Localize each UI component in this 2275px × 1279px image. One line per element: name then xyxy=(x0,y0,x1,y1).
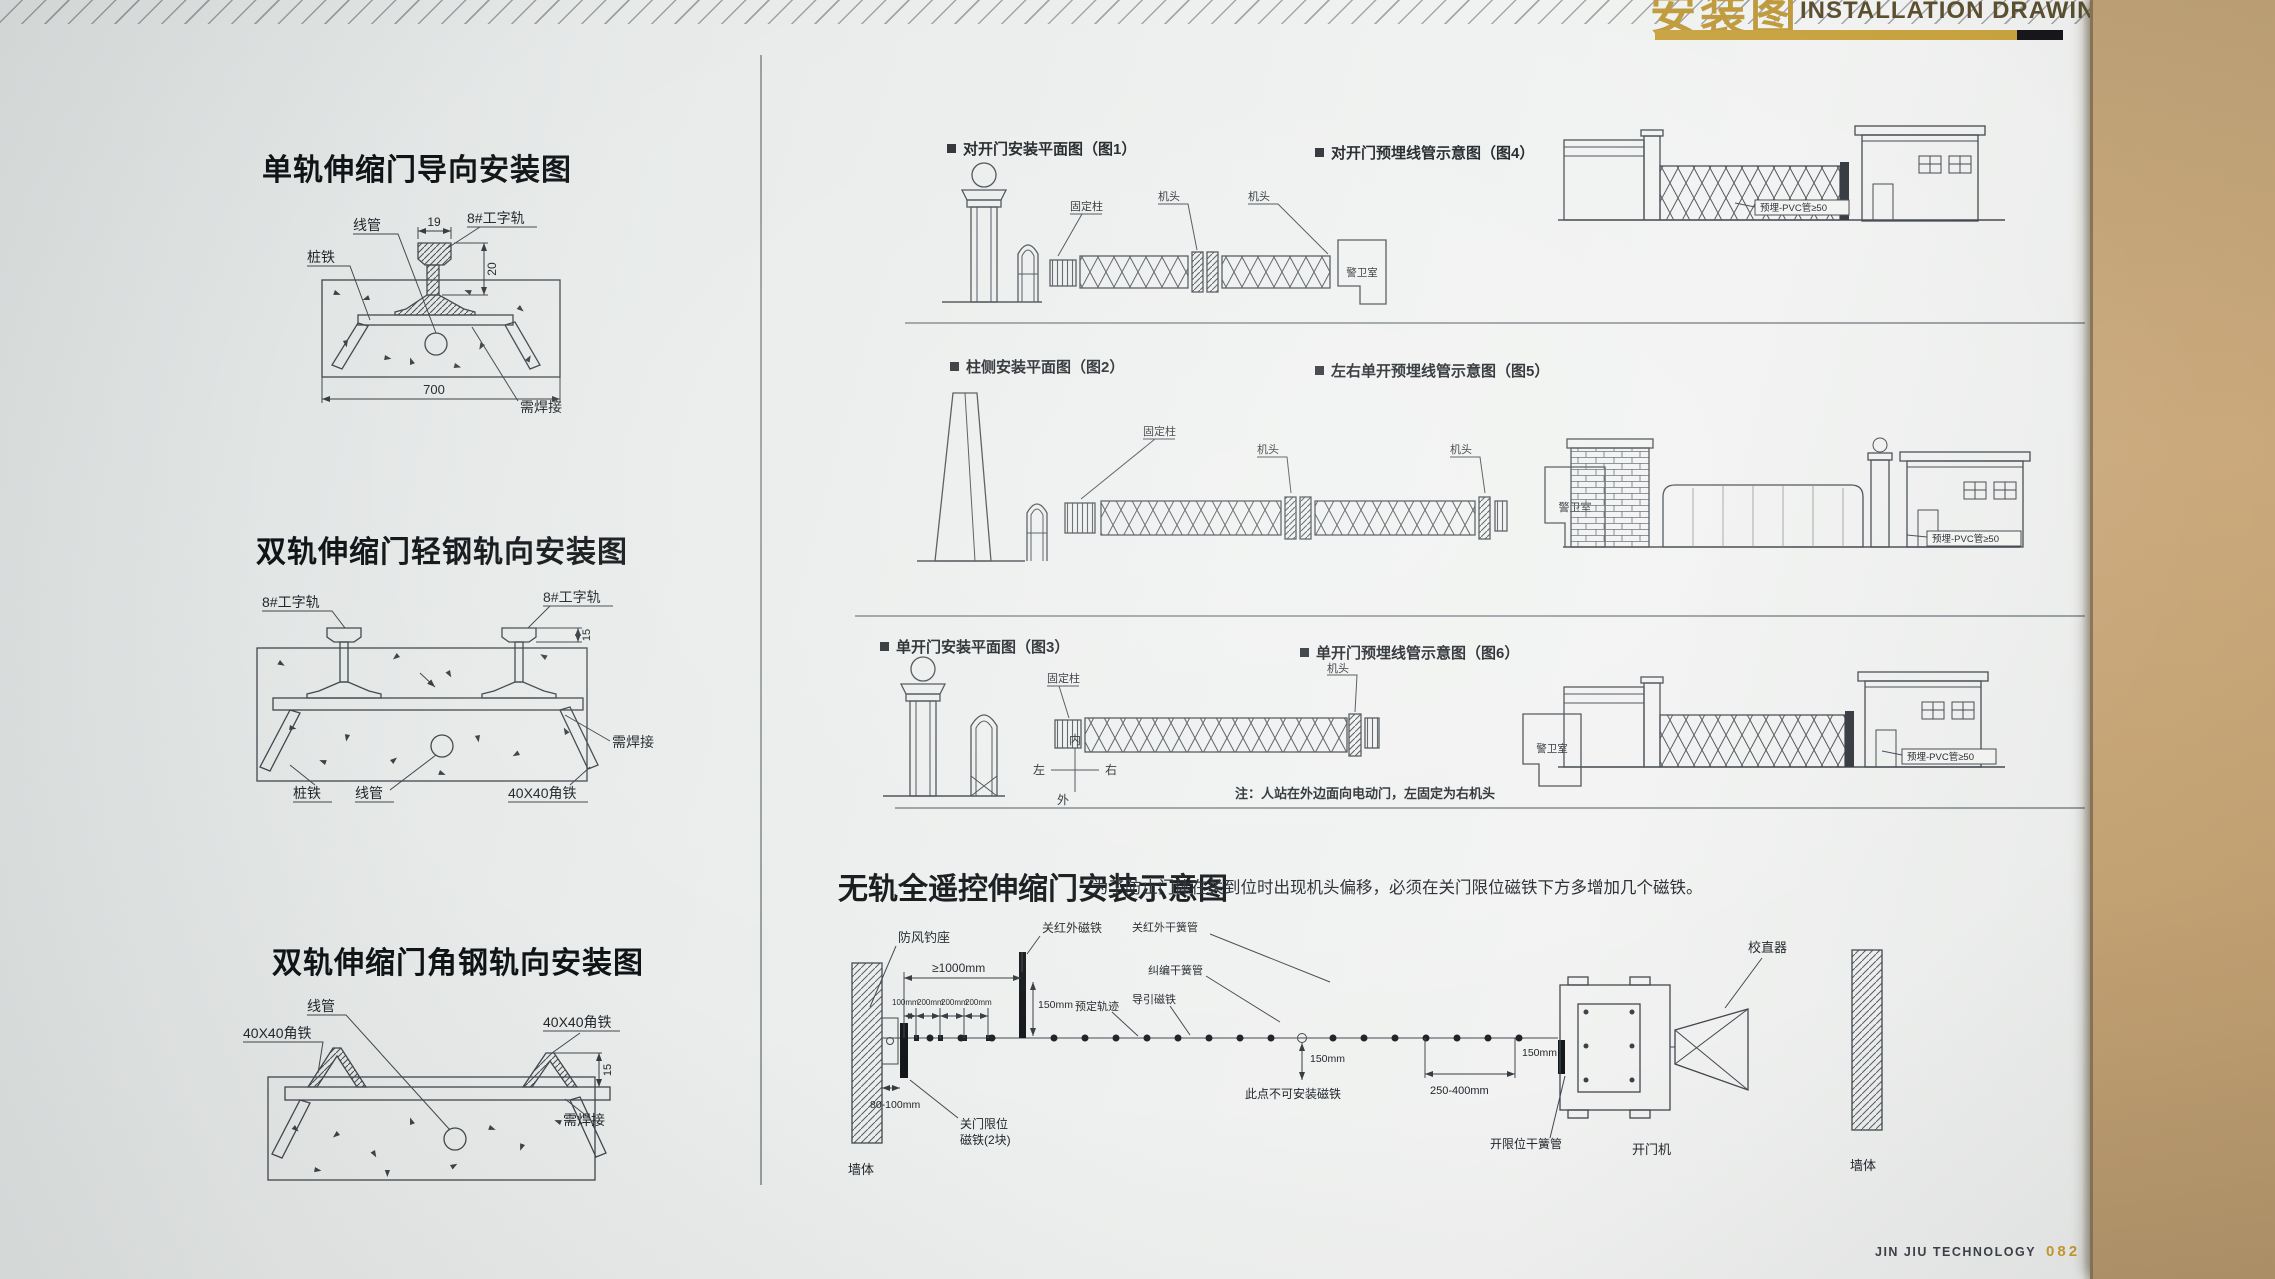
compass-left: 左 xyxy=(1033,762,1045,777)
banner-black-rule xyxy=(2017,30,2063,40)
label-wall-left: 墙体 xyxy=(848,1162,874,1177)
open-limit-magnet-bar xyxy=(1558,1040,1565,1074)
label-close-ir-magnet: 关红外磁铁 xyxy=(1042,920,1102,935)
label-weld: 需焊接 xyxy=(612,734,654,750)
dim-200a: 200mm xyxy=(917,998,944,1007)
dim-100: 100mm xyxy=(892,998,919,1007)
brand-name: JIN JIU TECHNOLOGY xyxy=(1875,1245,2036,1259)
diagram1-title: 单轨伸缩门导向安装图 xyxy=(262,145,572,189)
compass-outer: 外 xyxy=(1057,793,1069,807)
pvc-tag: 预埋-PVC管≥50 xyxy=(1907,751,1974,763)
label-wall-right: 墙体 xyxy=(1850,1158,1876,1173)
diagram2-title: 双轨伸缩门轻钢轨向安装图 xyxy=(256,527,628,571)
dim-700: 700 xyxy=(423,382,445,397)
label-rail-left: 8#工字轨 xyxy=(262,594,320,610)
catalog-page: 安装图 INSTALLATION DRAWINGS 单轨伸缩门导向安装图 19 … xyxy=(0,0,2275,1279)
elevation-single-gate-fig6: 预埋-PVC管≥50 xyxy=(1550,645,2020,785)
pvc-tag: 预埋-PVC管≥50 xyxy=(1932,533,1999,545)
dim-150c: 150mm xyxy=(1522,1047,1557,1059)
dim-200c: 200mm xyxy=(965,998,992,1007)
label-conduit: 线管 xyxy=(307,998,335,1014)
dim-150a: 150mm xyxy=(1038,999,1073,1011)
label-wind-hook: 防风钓座 xyxy=(898,930,950,945)
row-separator-2 xyxy=(855,615,2085,617)
page-footer: JIN JIU TECHNOLOGY 082 xyxy=(1875,1243,2080,1260)
background-wall xyxy=(2090,0,2275,1279)
label-planned-track: 预定轨迹 xyxy=(1075,999,1119,1013)
label-open-limit-reed: 开限位干簧管 xyxy=(1490,1136,1562,1151)
plan-single-gate-fig3: 警卫室 固定柱 机头 内 外 左 右 注：人站在外边面向电动门，左固定为右机头 xyxy=(875,648,1595,808)
label-opener: 开门机 xyxy=(1632,1142,1671,1157)
straightener-funnel xyxy=(1675,1009,1748,1090)
label-stake: 桩铁 xyxy=(307,249,335,265)
label-angle-iron: 40X40角铁 xyxy=(508,785,576,801)
dim-80-100: 80-100mm xyxy=(870,1099,920,1111)
concrete-speckles xyxy=(292,1117,562,1177)
square-bullet-icon xyxy=(1315,366,1324,375)
compass-inner: 内 xyxy=(1069,733,1081,747)
trackless-installation-diagram: 墙体 墙体 防风钓座 ≥1000mm 100mm xyxy=(770,912,1940,1222)
label-guide-magnet: 导引磁铁 xyxy=(1132,992,1176,1006)
dim-1000: ≥1000mm xyxy=(932,961,985,975)
compass-right: 右 xyxy=(1105,762,1117,777)
label-rail: 8#工字轨 xyxy=(467,210,525,226)
pvc-tag: 预埋-PVC管≥50 xyxy=(1760,202,1827,214)
label-head-a: 机头 xyxy=(1158,189,1180,203)
label-conduit: 线管 xyxy=(353,217,381,233)
concrete-speckles xyxy=(277,652,569,777)
dim-19: 19 xyxy=(427,215,441,229)
label-no-magnet: 此点不可安装磁铁 xyxy=(1245,1086,1341,1101)
diagram2-light-steel-rail: 8#工字轨 8#工字轨 15 需焊接 桩铁 线管 40X40角铁 xyxy=(150,575,710,820)
label-guard-room: 警卫室 xyxy=(1346,266,1378,279)
elevation-single-gate-fig5: 预埋-PVC管≥50 xyxy=(1555,385,2035,565)
dim-15: 15 xyxy=(581,629,593,641)
label-deviation-reed: 纠编干簧管 xyxy=(1148,963,1203,977)
label-straightener: 校直器 xyxy=(1748,940,1787,955)
label-close-ir-reed: 关红外干簧管 xyxy=(1132,920,1198,934)
header-fig2: 柱侧安装平面图（图2） xyxy=(950,356,1124,377)
page-number: 082 xyxy=(2046,1243,2080,1260)
label-angle-left: 40X40角铁 xyxy=(243,1025,311,1041)
label-head-b: 机头 xyxy=(1248,189,1270,203)
square-bullet-icon xyxy=(950,362,959,371)
dim-15: 15 xyxy=(602,1064,614,1076)
label-head-b: 机头 xyxy=(1450,442,1472,456)
trackless-note: 为了防止门体在关到位时出现机头偏移，必须在关门限位磁铁下方多增加几个磁铁。 xyxy=(1092,874,1703,898)
label-angle-right: 40X40角铁 xyxy=(543,1014,611,1030)
note-orientation: 注：人站在外边面向电动门，左固定为右机头 xyxy=(1235,786,1495,801)
plan-post-side-fig2: 警卫室 固定柱 机头 机头 xyxy=(905,375,1625,570)
dim-250-400: 250-400mm xyxy=(1430,1085,1489,1097)
label-rail-right: 8#工字轨 xyxy=(543,589,601,605)
label-fixed-post: 固定柱 xyxy=(1070,199,1103,213)
column-divider xyxy=(760,55,762,1185)
label-close-limit-1: 关门限位 xyxy=(960,1116,1008,1131)
label-close-limit-2: 磁铁(2块) xyxy=(960,1132,1011,1147)
label-stake: 桩铁 xyxy=(293,785,321,801)
label-head: 机头 xyxy=(1327,661,1349,675)
dim-200b: 200mm xyxy=(941,998,968,1007)
header-fig2-label: 柱侧安装平面图（图2） xyxy=(966,356,1124,377)
wind-hook-bracket xyxy=(882,1018,898,1064)
dim-150b: 150mm xyxy=(1310,1053,1345,1065)
label-fixed-post: 固定柱 xyxy=(1143,424,1176,438)
label-fixed-post: 固定柱 xyxy=(1047,671,1080,685)
gate-opener-machine xyxy=(1560,977,1670,1118)
label-head-a: 机头 xyxy=(1257,442,1279,456)
diagram3-angle-steel-rail: 线管 40X40角铁 40X40角铁 15 需焊接 xyxy=(150,975,670,1190)
right-wall xyxy=(1852,950,1882,1130)
label-weld: 需焊接 xyxy=(520,399,562,415)
diagram1-single-rail: 19 20 线管 8#工字轨 桩铁 700 需焊接 xyxy=(220,205,580,425)
label-conduit: 线管 xyxy=(355,785,383,801)
plan-double-gate-fig1: 警卫室 固定柱 机头 机头 xyxy=(930,152,1400,324)
dim-20: 20 xyxy=(485,262,499,276)
elevation-double-gate-fig4: 预埋-PVC管≥50 xyxy=(1550,108,2020,236)
page-edge-shadow xyxy=(2082,0,2090,1279)
banner-gold-rule xyxy=(1655,30,2017,40)
